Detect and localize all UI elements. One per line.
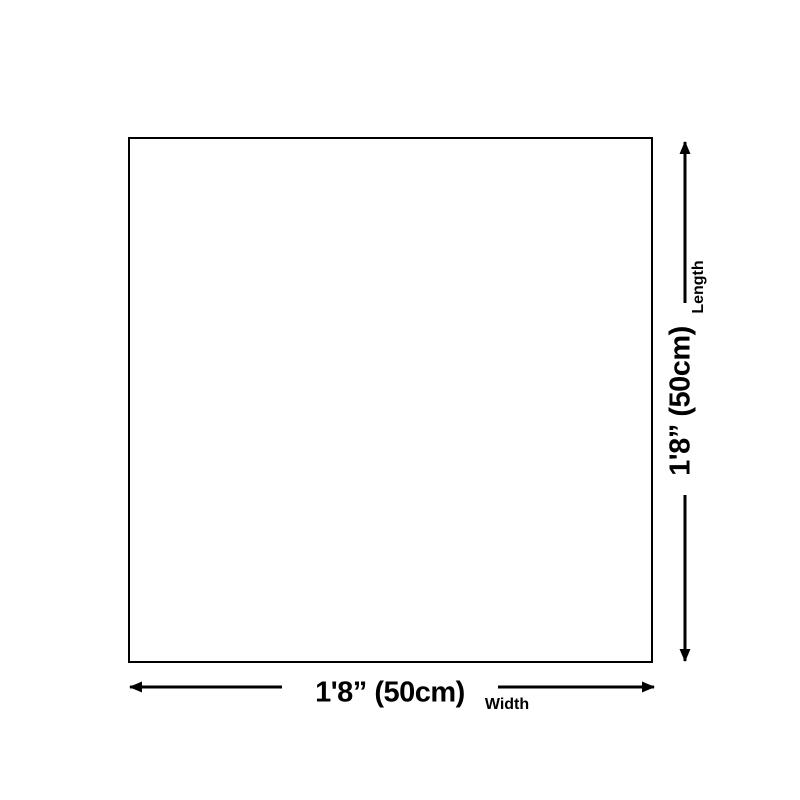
width-axis-label: Width: [485, 697, 529, 713]
length-value: 1'8” (50cm): [667, 326, 696, 476]
dimension-diagram: 1'8” (50cm) Length 1'8” (50cm) Width: [0, 0, 800, 800]
width-value: 1'8” (50cm): [315, 679, 465, 708]
length-axis-label: Length: [691, 260, 707, 313]
